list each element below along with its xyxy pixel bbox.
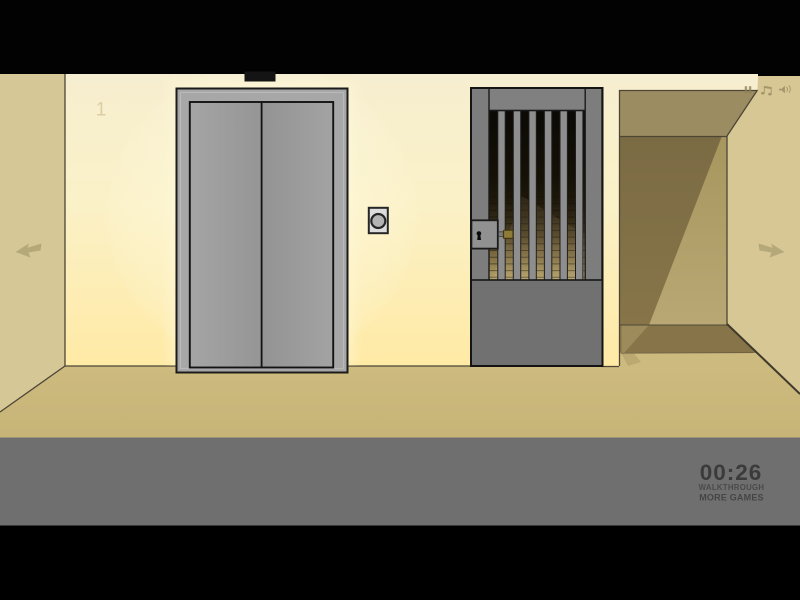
svg-text:MORE GAMES: MORE GAMES: [699, 493, 764, 503]
svg-text:1: 1: [96, 100, 107, 121]
svg-text:00:26: 00:26: [700, 460, 763, 485]
svg-text:WALKTHROUGH: WALKTHROUGH: [699, 483, 765, 492]
